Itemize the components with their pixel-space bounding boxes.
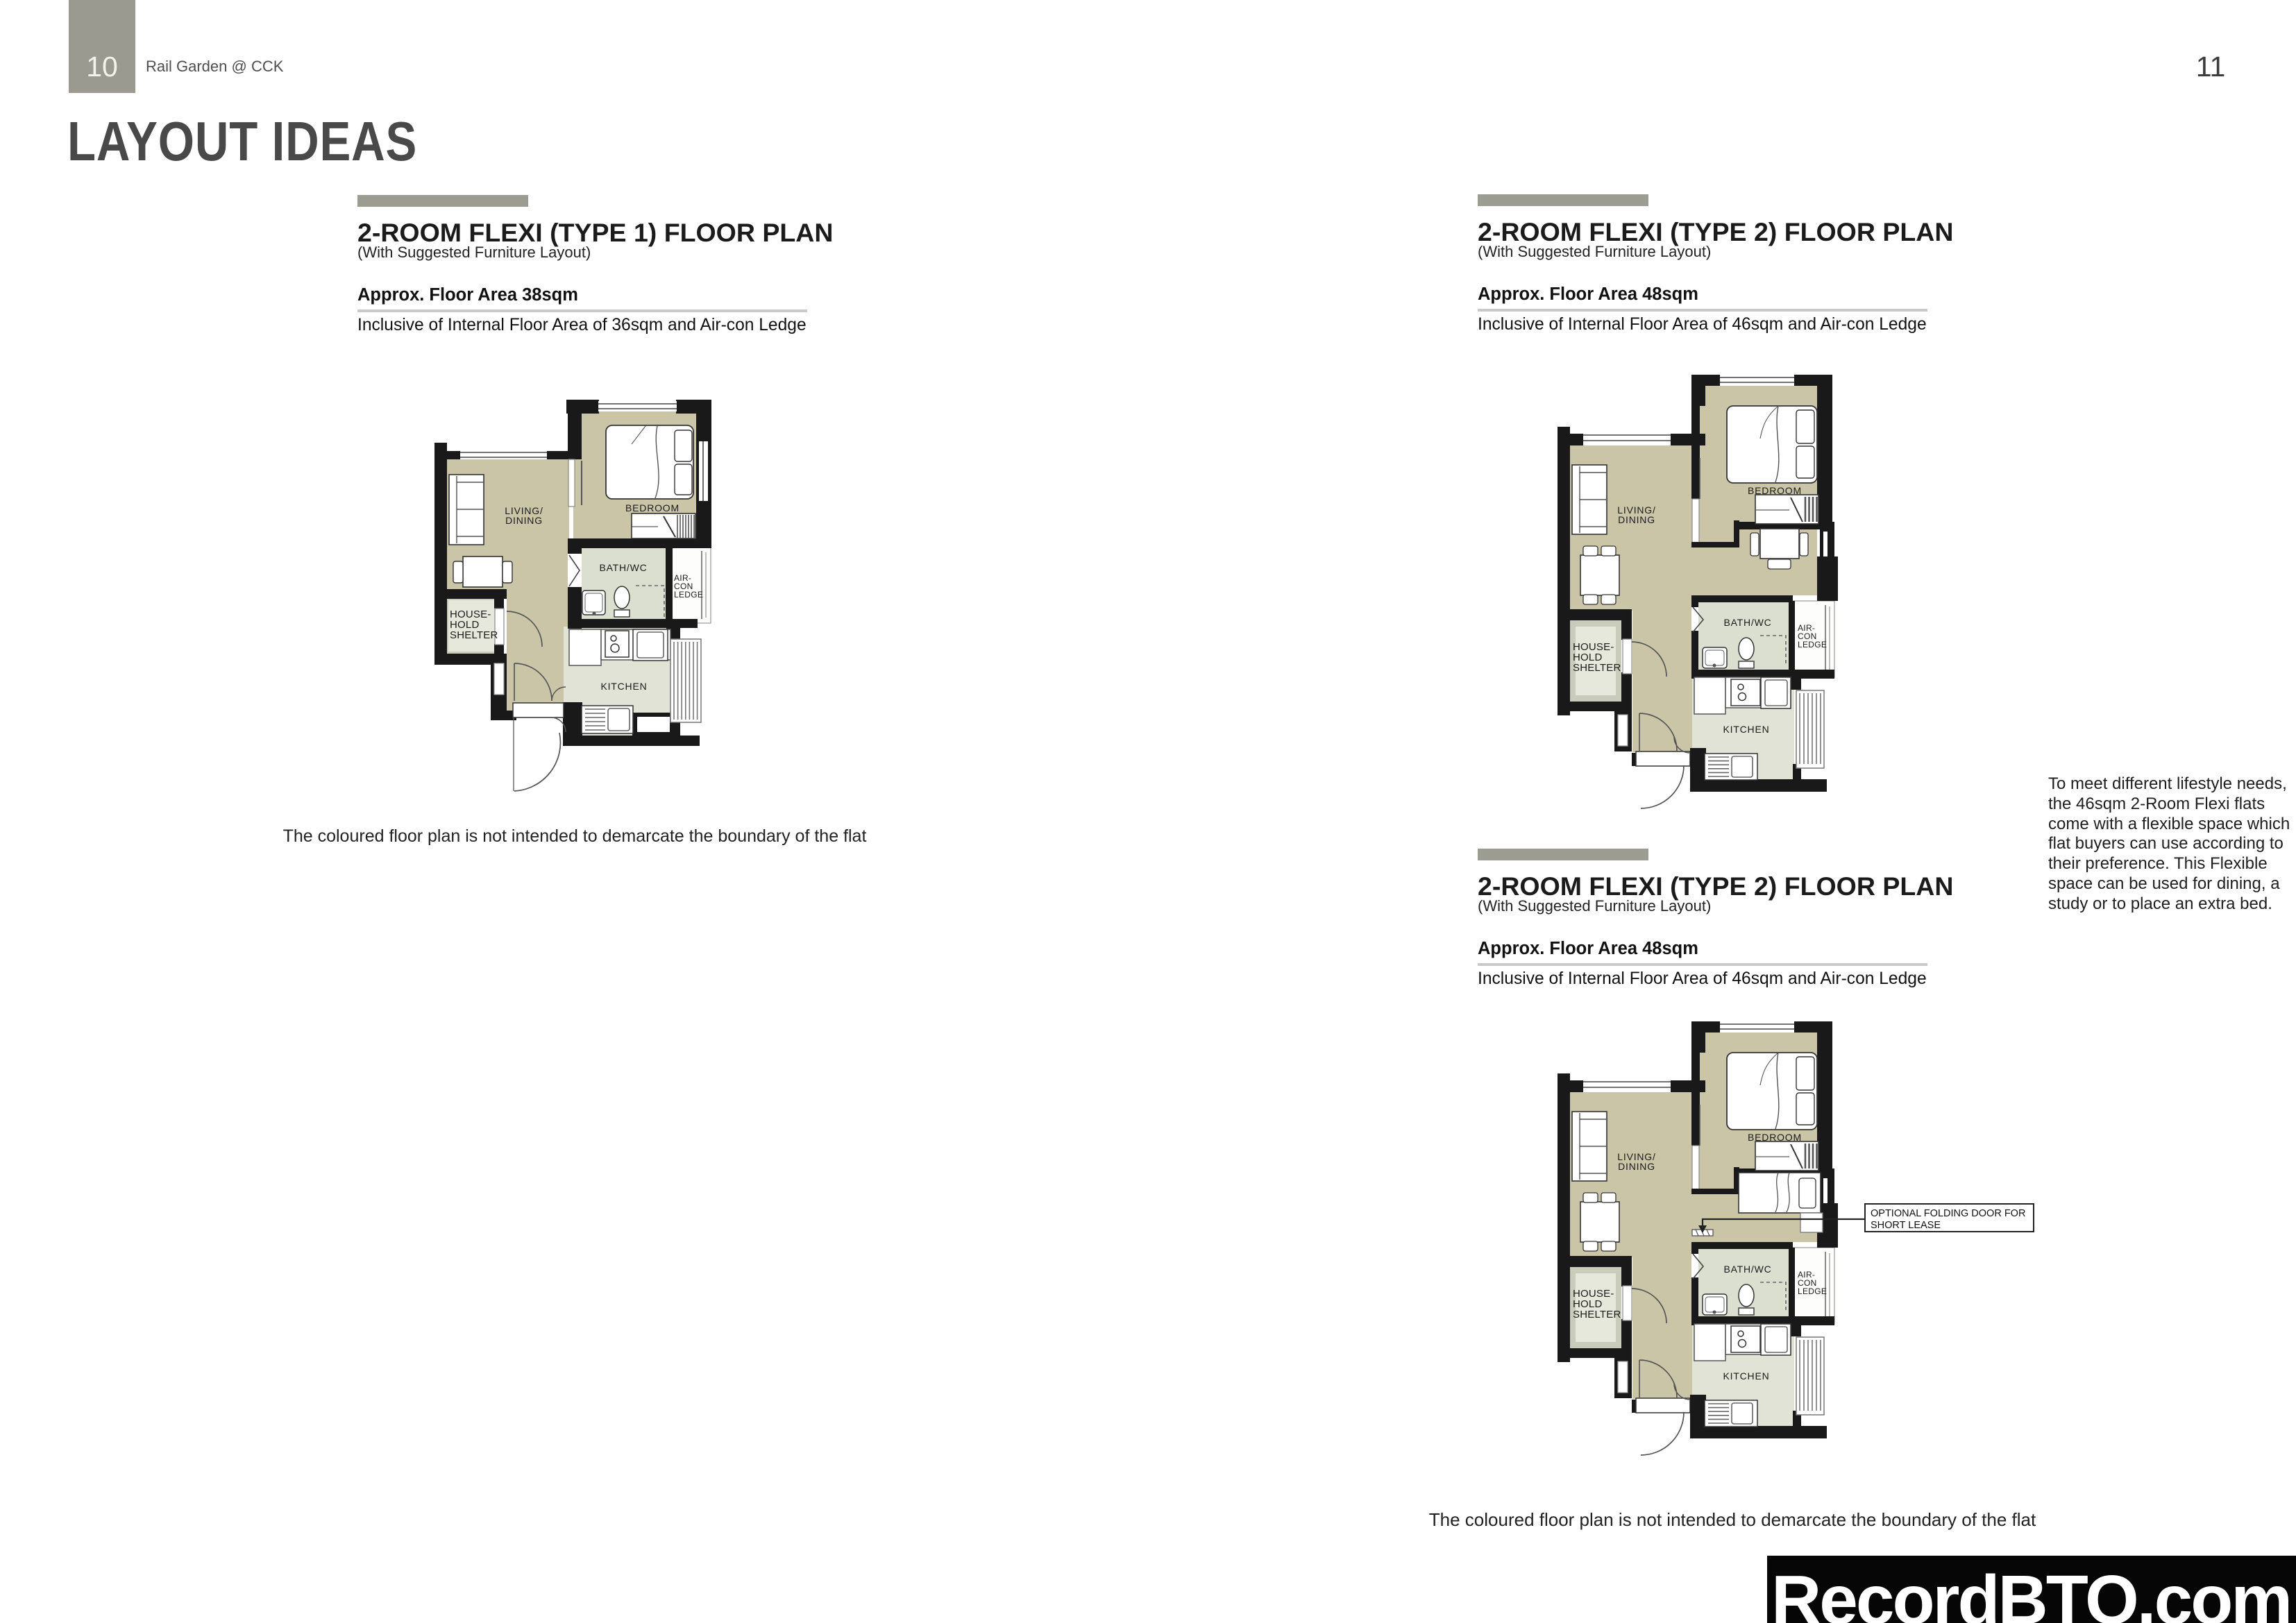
svg-text:DINING: DINING — [505, 515, 543, 526]
svg-text:DINING: DINING — [1618, 1161, 1655, 1172]
svg-text:LEDGE: LEDGE — [1798, 1286, 1827, 1296]
svg-text:KITCHEN: KITCHEN — [600, 681, 647, 692]
svg-text:LEDGE: LEDGE — [1798, 640, 1827, 649]
svg-text:KITCHEN: KITCHEN — [1723, 1370, 1769, 1382]
svg-text:DINING: DINING — [1618, 514, 1655, 525]
svg-text:SHELTER: SHELTER — [1573, 662, 1621, 674]
svg-text:BATH/WC: BATH/WC — [1723, 617, 1771, 628]
svg-text:SHELTER: SHELTER — [1573, 1309, 1621, 1320]
svg-text:BATH/WC: BATH/WC — [599, 562, 647, 573]
svg-text:SHELTER: SHELTER — [450, 629, 498, 641]
svg-text:BEDROOM: BEDROOM — [625, 502, 679, 513]
svg-text:BEDROOM: BEDROOM — [1748, 1132, 1802, 1143]
svg-text:BATH/WC: BATH/WC — [1723, 1264, 1771, 1275]
svg-text:LEDGE: LEDGE — [674, 590, 703, 600]
svg-text:KITCHEN: KITCHEN — [1723, 724, 1769, 735]
svg-text:BEDROOM: BEDROOM — [1748, 485, 1802, 496]
